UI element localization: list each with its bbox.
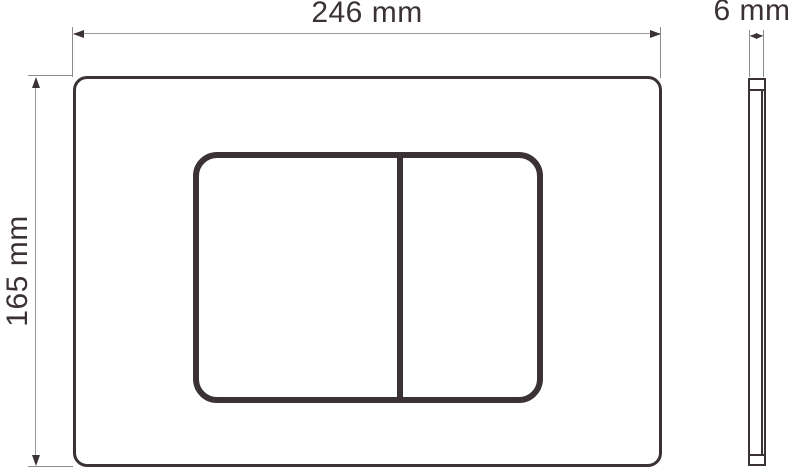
height-arrow-up-icon [32,77,40,88]
height-arrow-down-icon [32,455,40,466]
side-view-bottom-edge-line [750,454,764,456]
width-dimension-line [74,33,660,34]
width-arrow-right-icon [650,30,661,38]
thickness-extension-line-right [763,30,764,77]
height-extension-line-top [28,75,73,76]
height-dimension-line [35,79,36,464]
flush-plate-side-view-outline [748,78,766,466]
width-dimension-label: 246 mm [267,0,467,29]
drawing-canvas: 246 mm 6 mm 165 mm [0,0,800,473]
flush-button-panel-outline [193,152,543,403]
height-extension-line-bottom [28,466,73,467]
thickness-dimension-label: 6 mm [692,0,800,27]
side-view-front-face-line [761,90,763,455]
left-flush-button [199,158,397,397]
height-dimension-label: 165 mm [2,201,32,341]
right-flush-button [403,158,537,397]
width-arrow-left-icon [73,30,84,38]
thickness-arrow-right-icon [756,33,763,39]
